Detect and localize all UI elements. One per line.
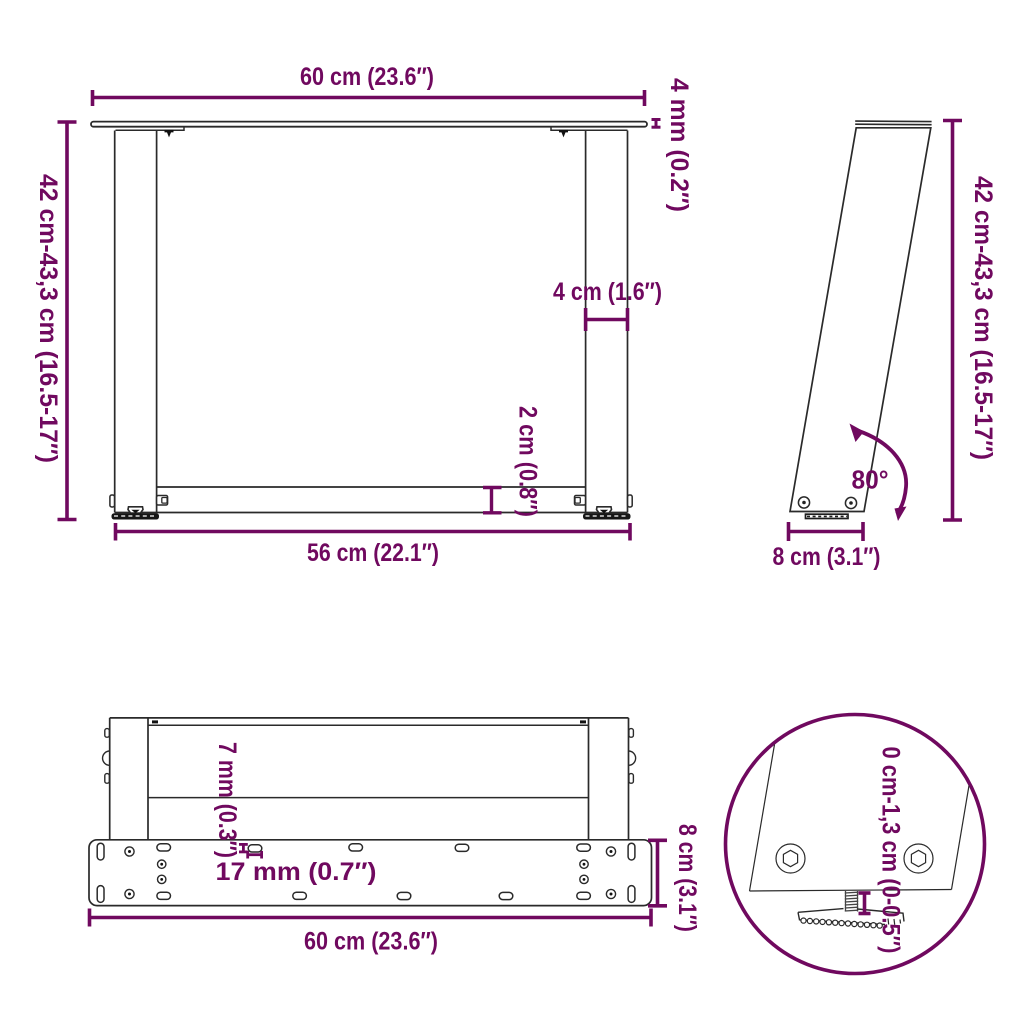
svg-text:80°: 80° — [852, 465, 889, 495]
svg-text:42 cm-43,3 cm (16.5-17″): 42 cm-43,3 cm (16.5-17″) — [969, 176, 997, 460]
svg-text:60 cm (23.6″): 60 cm (23.6″) — [300, 63, 434, 91]
svg-text:8 cm (3.1″): 8 cm (3.1″) — [773, 543, 881, 571]
svg-text:56 cm (22.1″): 56 cm (22.1″) — [307, 539, 439, 567]
svg-text:2 cm (0.8″): 2 cm (0.8″) — [514, 406, 542, 517]
svg-text:0 cm-1,3 cm (0-0.5″): 0 cm-1,3 cm (0-0.5″) — [877, 747, 905, 954]
svg-text:4 cm (1.6″): 4 cm (1.6″) — [553, 278, 662, 306]
svg-text:60 cm (23.6″): 60 cm (23.6″) — [304, 928, 438, 956]
svg-text:17 mm (0.7″): 17 mm (0.7″) — [216, 858, 377, 886]
svg-text:42 cm-43,3 cm (16.5-17″): 42 cm-43,3 cm (16.5-17″) — [34, 174, 62, 463]
svg-text:8 cm (3.1″): 8 cm (3.1″) — [673, 824, 701, 932]
svg-text:4 mm (0.2″): 4 mm (0.2″) — [665, 78, 693, 212]
svg-text:7 mm (0.3″): 7 mm (0.3″) — [213, 742, 241, 858]
